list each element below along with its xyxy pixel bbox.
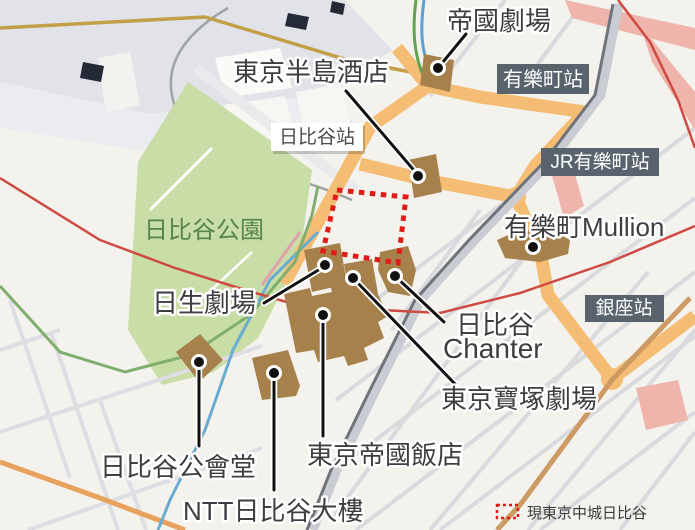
dot-kokaido: [193, 356, 206, 369]
station-badge-ginza: 銀座站: [585, 295, 664, 322]
dot-teikoku-gekijo: [432, 62, 445, 75]
label-peninsula: 東京半島酒店: [233, 57, 389, 87]
label-nissay: 日生劇場: [152, 288, 256, 318]
station-badge-jr-yurakucho: JR有樂町站: [541, 148, 659, 176]
label-imperial-hotel: 東京帝國飯店: [307, 440, 463, 470]
label-mullion: 有樂町Mullion: [504, 212, 664, 242]
station-label-hibiya: 日比谷站: [279, 126, 355, 148]
dot-ntt: [268, 367, 281, 380]
map-canvas: 日比谷站 有樂町站 JR有樂町站 銀座站 日比谷公園 帝國劇場 東京半島酒店 有…: [0, 0, 695, 530]
hibiya-area-map: 日比谷站 有樂町站 JR有樂町站 銀座站 日比谷公園 帝國劇場 東京半島酒店 有…: [0, 0, 695, 530]
station-badge-hibiya: 日比谷站: [271, 123, 365, 154]
station-label-jr-yurakucho: JR有樂町站: [550, 151, 649, 173]
dot-peninsula: [412, 170, 425, 183]
station-badge-yurakucho: 有樂町站: [497, 64, 589, 94]
park-label: 日比谷公園: [144, 217, 264, 244]
station-label-yurakucho: 有樂町站: [503, 68, 583, 91]
label-ntt: NTT日比谷大樓: [183, 496, 364, 526]
label-takarazuka: 東京寶塚劇場: [441, 384, 597, 414]
label-teikoku-gekijo: 帝國劇場: [447, 6, 551, 36]
dot-takarazuka: [347, 272, 360, 285]
dot-imperial-hotel: [317, 309, 330, 322]
station-label-ginza: 銀座站: [595, 297, 652, 319]
label-chanter-line2: Chanter: [443, 333, 543, 364]
legend-label: 現東京中城日比谷: [527, 505, 647, 522]
label-kokaido: 日比谷公會堂: [100, 452, 256, 482]
dot-chanter: [389, 270, 402, 283]
dot-nissay: [319, 259, 332, 272]
dot-mullion: [527, 241, 540, 254]
